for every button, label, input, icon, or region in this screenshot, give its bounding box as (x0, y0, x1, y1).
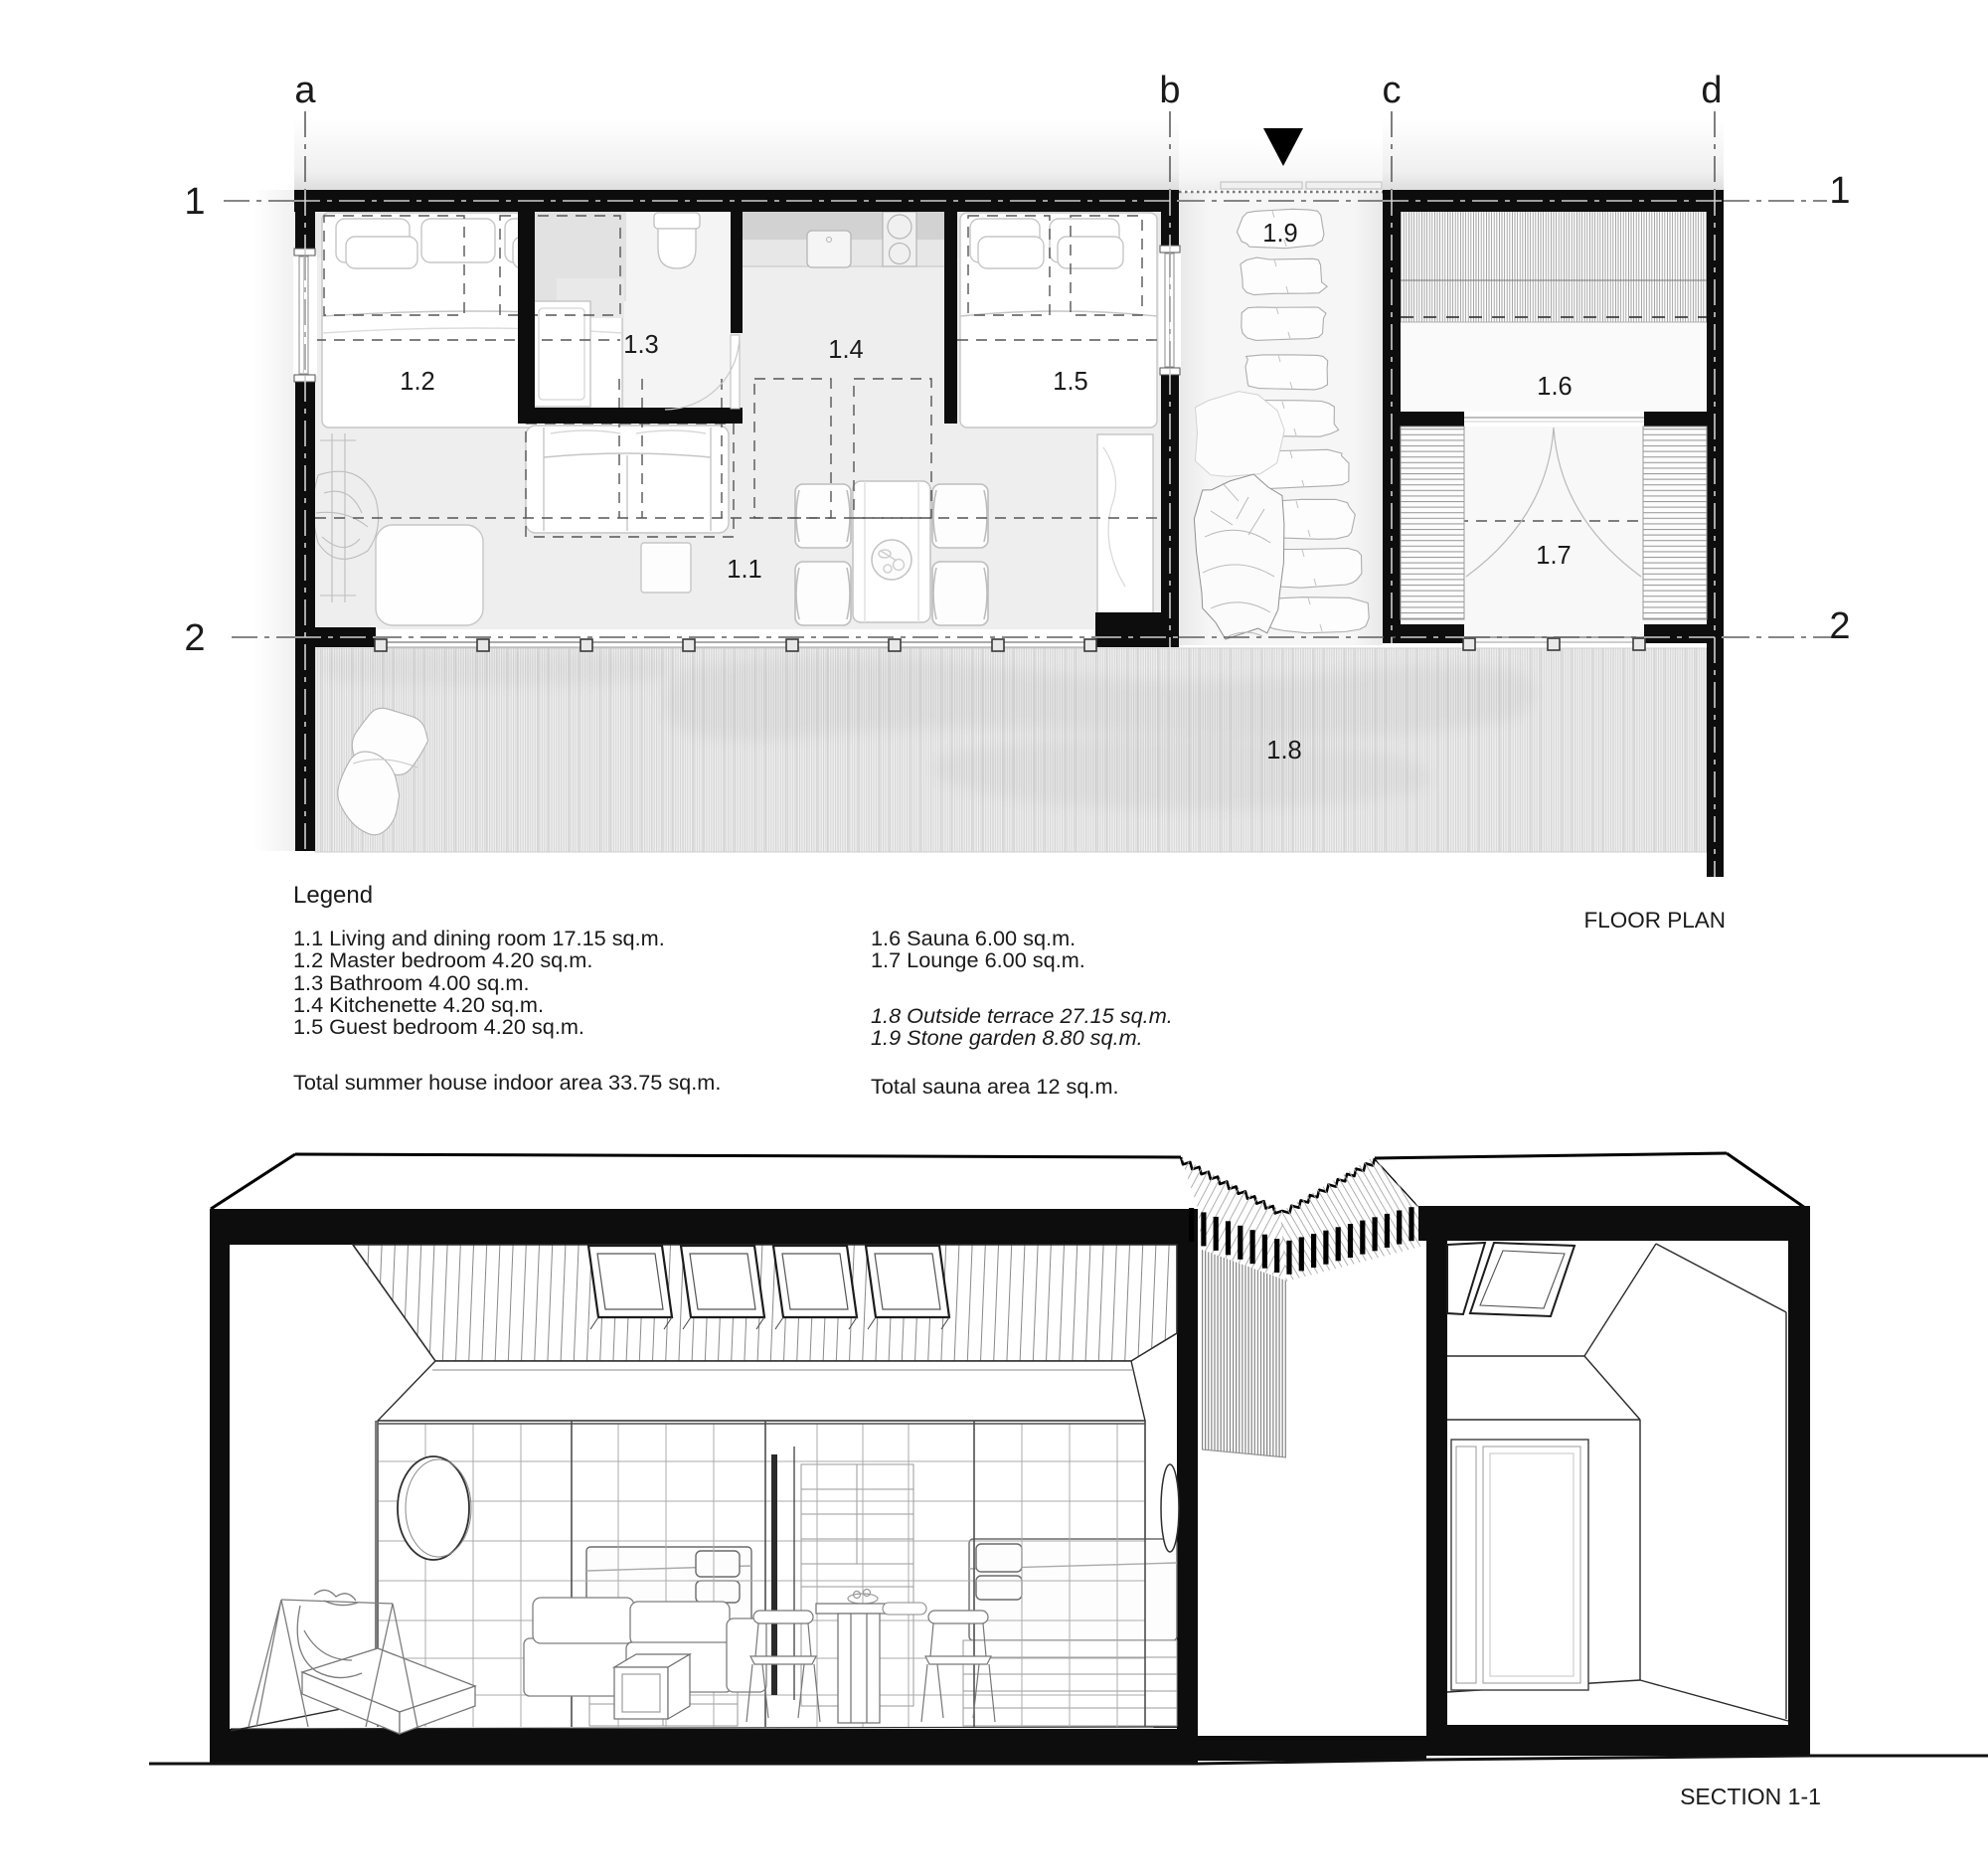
svg-text:c: c (1383, 70, 1402, 111)
svg-text:FLOOR PLAN: FLOOR PLAN (1583, 908, 1726, 933)
svg-text:b: b (1159, 70, 1180, 111)
svg-text:1.4: 1.4 (828, 336, 863, 364)
svg-text:1.9: 1.9 (1262, 220, 1297, 248)
svg-text:2: 2 (1829, 605, 1850, 647)
svg-text:2: 2 (184, 617, 205, 659)
svg-text:a: a (294, 70, 316, 111)
svg-text:1.6: 1.6 (1537, 373, 1572, 401)
svg-text:1.5: 1.5 (1053, 368, 1087, 396)
svg-text:1: 1 (184, 181, 205, 223)
svg-text:SECTION 1-1: SECTION 1-1 (1680, 1784, 1821, 1809)
svg-text:1.1: 1.1 (727, 556, 761, 584)
svg-text:1.2: 1.2 (400, 368, 434, 396)
svg-text:1: 1 (1829, 170, 1850, 212)
svg-text:1.8: 1.8 (1266, 737, 1301, 765)
svg-text:1.5 Guest bedroom 4.20 sq.m.: 1.5 Guest bedroom 4.20 sq.m. (293, 1014, 584, 1039)
svg-text:1.3: 1.3 (623, 331, 658, 359)
svg-text:Total summer house indoor area: Total summer house indoor area 33.75 sq.… (293, 1070, 721, 1095)
svg-text:d: d (1701, 70, 1722, 111)
svg-text:1.2 Master bedroom 4.20 sq.m.: 1.2 Master bedroom 4.20 sq.m. (293, 947, 592, 972)
svg-text:1.9 Stone garden 8.80 sq.m.: 1.9 Stone garden 8.80 sq.m. (871, 1025, 1143, 1050)
svg-text:Total sauna area 12 sq.m.: Total sauna area 12 sq.m. (871, 1074, 1119, 1099)
svg-text:1.7: 1.7 (1536, 542, 1571, 570)
svg-text:Legend: Legend (293, 882, 373, 909)
svg-text:1.7 Lounge 6.00 sq.m.: 1.7 Lounge 6.00 sq.m. (871, 947, 1085, 972)
